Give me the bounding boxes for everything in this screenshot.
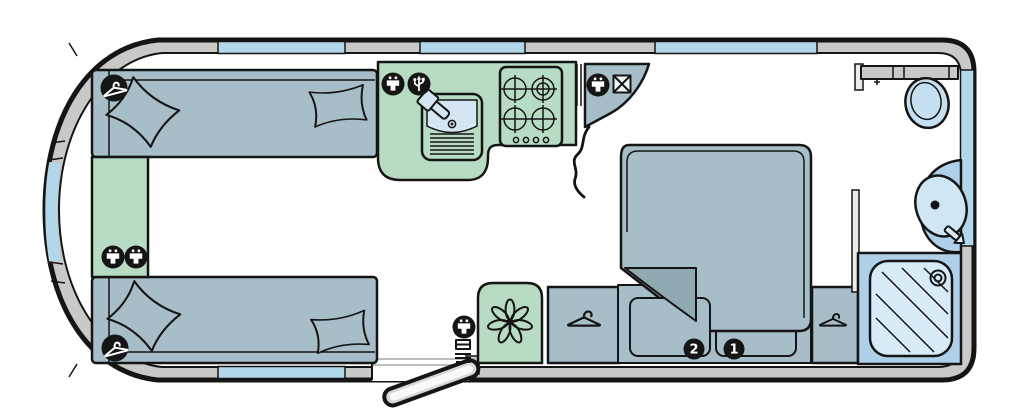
mains-socket-icon [453, 316, 476, 339]
window-top-1 [218, 42, 345, 54]
mains-socket-icon [125, 246, 148, 269]
basin-drain [931, 201, 940, 210]
drawer-badge-1: 1 [729, 343, 738, 358]
window-front [51, 163, 55, 261]
caravan-floorplan-svg: 2 1 [0, 0, 1024, 411]
bed [618, 145, 811, 363]
usb-socket-icon [408, 73, 431, 96]
tv-aerial-socket-icon [614, 76, 631, 93]
speaker-roundel-top [101, 75, 128, 102]
drawer-badge-2: 2 [689, 343, 698, 358]
speaker-roundel-bottom [102, 335, 129, 362]
mains-socket-icon [587, 74, 610, 97]
mains-socket-icon [382, 73, 405, 96]
sink-drain-dot [451, 123, 454, 126]
window-top-3 [655, 42, 817, 54]
window-bottom-1 [218, 367, 345, 379]
window-top-2 [420, 42, 525, 54]
mains-socket-icon [102, 246, 125, 269]
caravan-floorplan: 2 1 [0, 0, 1024, 411]
washroom-shelf [861, 66, 958, 79]
